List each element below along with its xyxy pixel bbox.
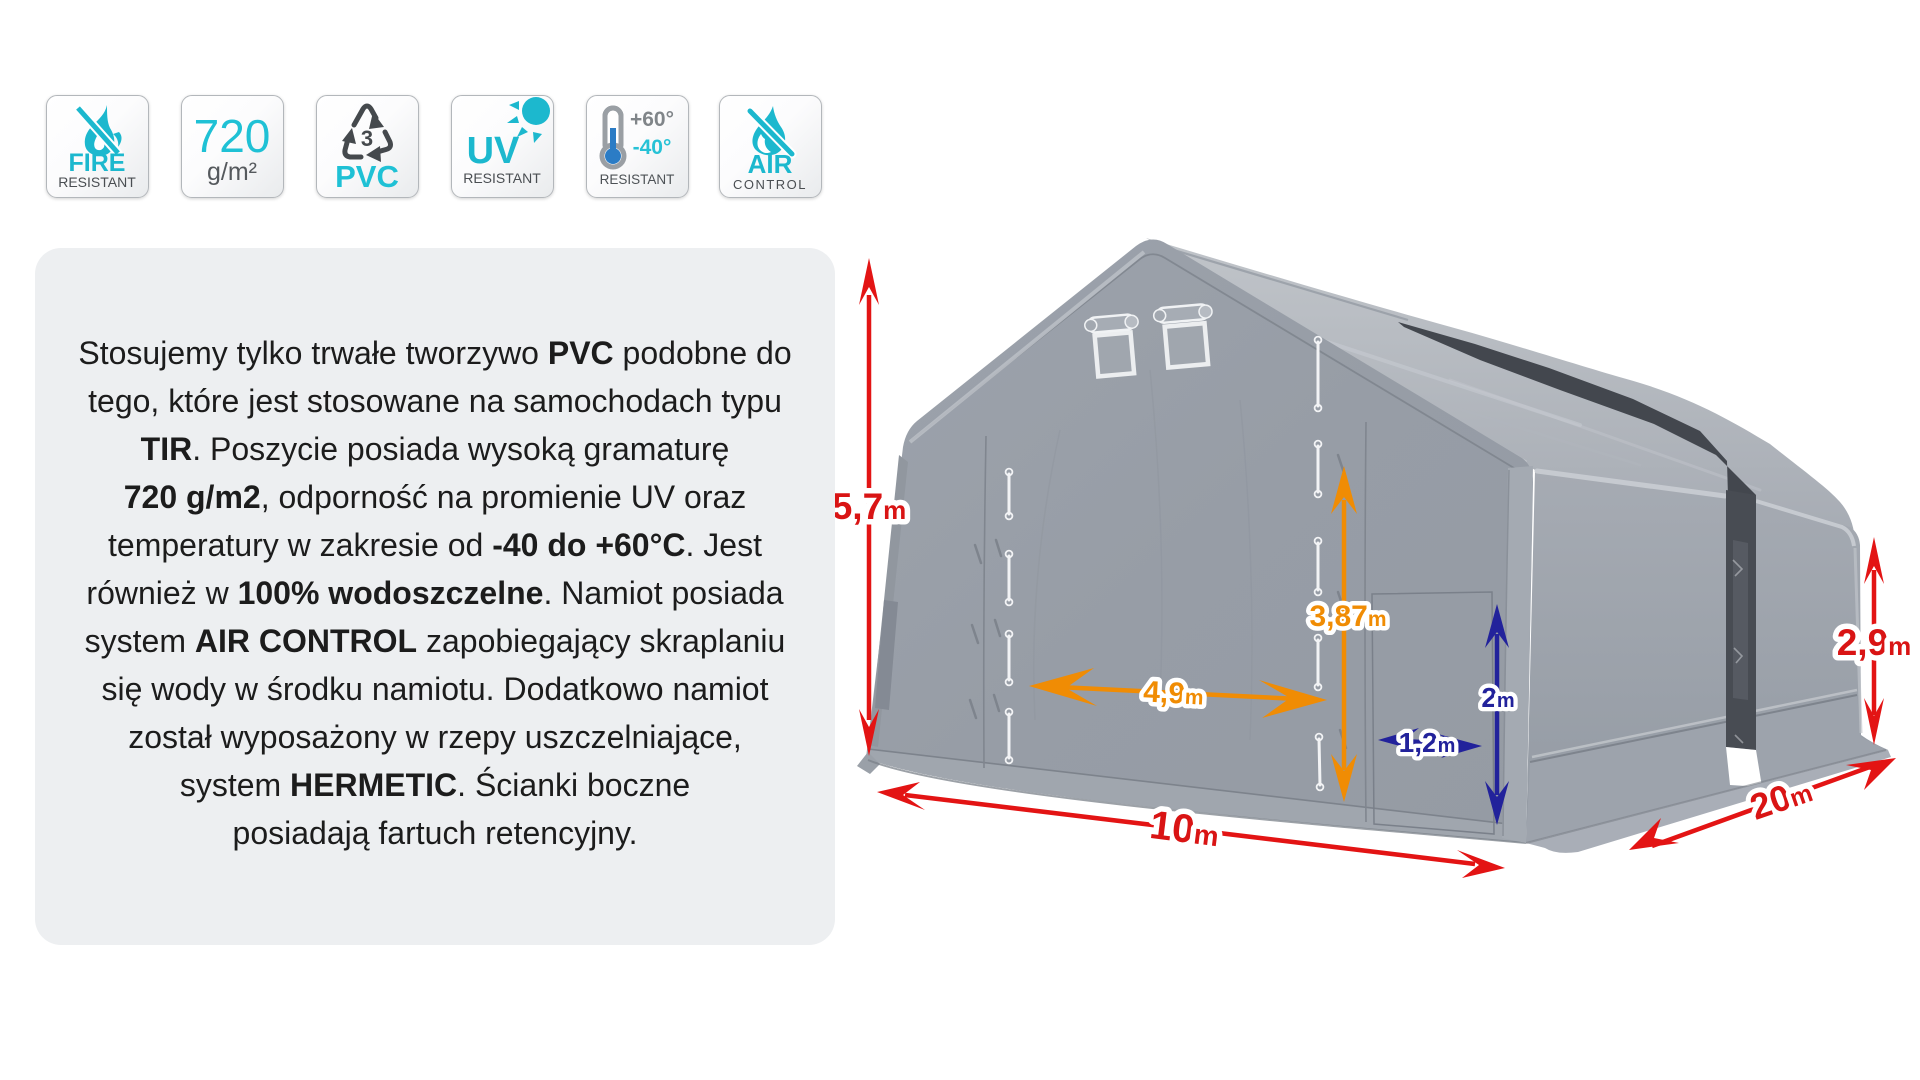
svg-text:g/m²: g/m² xyxy=(207,158,257,186)
svg-text:-40°: -40° xyxy=(633,136,672,159)
svg-text:UV: UV xyxy=(467,130,520,172)
svg-text:3: 3 xyxy=(361,126,373,151)
svg-text:PVC: PVC xyxy=(335,159,399,194)
svg-text:5,7m: 5,7m xyxy=(832,486,907,527)
svg-text:RESISTANT: RESISTANT xyxy=(463,170,541,186)
svg-text:RESISTANT: RESISTANT xyxy=(600,172,675,187)
svg-text:CONTROL: CONTROL xyxy=(733,177,807,192)
svg-text:RESISTANT: RESISTANT xyxy=(58,174,136,190)
svg-text:2,9m: 2,9m xyxy=(1837,622,1912,663)
svg-text:+60°: +60° xyxy=(630,108,674,131)
svg-text:720: 720 xyxy=(194,110,271,162)
svg-text:FIRE: FIRE xyxy=(69,149,126,177)
svg-text:AIR: AIR xyxy=(748,149,793,179)
